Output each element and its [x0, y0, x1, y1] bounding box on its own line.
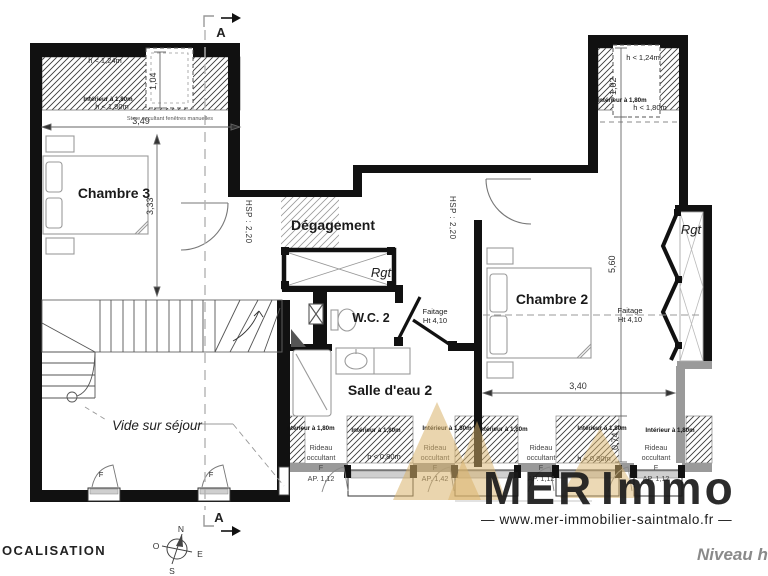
compass-e: E	[197, 549, 203, 559]
dim-102: 1,02	[608, 77, 618, 95]
label-chambre3: Chambre 3	[78, 185, 151, 201]
rideau-l2: occultant	[642, 453, 671, 462]
wall-wc-east-stub	[395, 291, 403, 303]
wall-post	[474, 220, 482, 228]
faitage-ht-left: Ht 4,10	[423, 316, 447, 325]
compass-o: O	[153, 541, 160, 551]
section-marker-top: A	[204, 13, 241, 40]
window	[198, 465, 230, 501]
note-h180-left: h < 1,80m	[95, 102, 129, 111]
section-label-bottom: A	[214, 510, 224, 525]
rideau-l1: Rideau	[530, 443, 553, 452]
door-chambre2	[486, 179, 531, 224]
wall-chambre3-right	[228, 43, 240, 190]
folding-door	[663, 213, 678, 360]
wall-top-left	[30, 43, 240, 57]
note-int180: Intérieur à 1,80m	[285, 425, 335, 432]
floor-plan: Chambre 3 Dégagement W.C. 2 Salle d'eau …	[0, 0, 768, 576]
door-wc	[398, 297, 420, 340]
hatch-top-left	[42, 57, 240, 110]
compass-rose: N O E S	[153, 524, 203, 576]
hsp-right: HSP : 2,20	[448, 196, 457, 240]
hsp-left: HSP : 2,20	[244, 200, 253, 244]
staircase	[42, 300, 282, 402]
window-f-left1: F	[99, 470, 104, 479]
rideau-f: F	[319, 463, 324, 472]
dim-104: 1,04	[148, 72, 158, 90]
label-degagement: Dégagement	[291, 217, 375, 233]
rideau-l1: Rideau	[310, 443, 333, 452]
wall-bottom-left	[30, 490, 289, 502]
section-label-top: A	[216, 25, 226, 40]
label-vide-sur-sejour: Vide sur séjour	[112, 418, 202, 433]
dim-333: 3,33	[145, 197, 155, 215]
section-marker-bottom: A	[204, 510, 241, 536]
hatch-strip	[289, 416, 305, 463]
bed-chambre2	[487, 248, 591, 378]
dim-340: 3,40	[569, 381, 587, 391]
note-store: Store occultant fenêtres manuelles	[127, 116, 213, 122]
window-side	[279, 467, 289, 495]
faitage-left: Faitage	[422, 307, 447, 316]
sink	[336, 348, 410, 374]
rideau-ap: AP. 1,12	[308, 474, 335, 483]
wall-degagement-north	[228, 190, 362, 197]
note-h180-right: h < 1,80m	[633, 103, 667, 112]
hatch-strip	[686, 416, 712, 463]
wall-corridor-north	[353, 165, 595, 173]
shower	[293, 350, 331, 416]
wall-top-right-east	[679, 35, 688, 212]
label-wc2: W.C. 2	[352, 311, 390, 325]
label-rgt-right: Rgt	[681, 222, 703, 237]
label-salle-deau2: Salle d'eau 2	[348, 382, 432, 398]
note-h124-left: h < 1,24m	[88, 56, 122, 65]
watermark-brand-immo: Immo	[601, 462, 736, 514]
faitage-right: Faitage	[617, 306, 642, 315]
note-int180: Intérieur à 1,80m	[478, 426, 528, 433]
label-chambre2: Chambre 2	[516, 291, 589, 307]
watermark-brand-mer: MER	[483, 462, 594, 514]
wall-top-right-west	[588, 35, 598, 173]
label-rgt-middle: Rgt	[371, 265, 393, 280]
note-int180: Intérieur à 1,80m	[351, 427, 401, 434]
dim-074: 0,74	[610, 432, 620, 450]
note-h124-right: h < 1,24m	[626, 53, 660, 62]
rideau-l2: occultant	[527, 453, 556, 462]
localisation-label: OCALISATION	[2, 543, 106, 558]
dim-560: 5,60	[607, 255, 617, 273]
level-label: Niveau ha	[697, 545, 768, 564]
watermark-url: — www.mer-immobilier-saintmalo.fr —	[481, 512, 732, 527]
wall-east-outer	[703, 205, 712, 366]
note-int180: Intérieur à 1,80m	[645, 427, 695, 434]
wall-left	[30, 43, 42, 502]
room-labels: Chambre 3 Dégagement W.C. 2 Salle d'eau …	[78, 185, 703, 433]
note-int180: Intérieur à 1,80m	[577, 425, 627, 432]
rideau-l2: occultant	[307, 453, 336, 462]
compass-n: N	[178, 524, 184, 534]
rideau-l1: Rideau	[645, 443, 668, 452]
compass-s: S	[169, 566, 175, 576]
window	[88, 465, 120, 501]
duct-box	[309, 304, 323, 324]
note-h080: h < 0,80m	[367, 452, 401, 461]
faitage-ht-right: Ht 4,10	[618, 315, 642, 324]
window-f-left2: F	[209, 470, 214, 479]
